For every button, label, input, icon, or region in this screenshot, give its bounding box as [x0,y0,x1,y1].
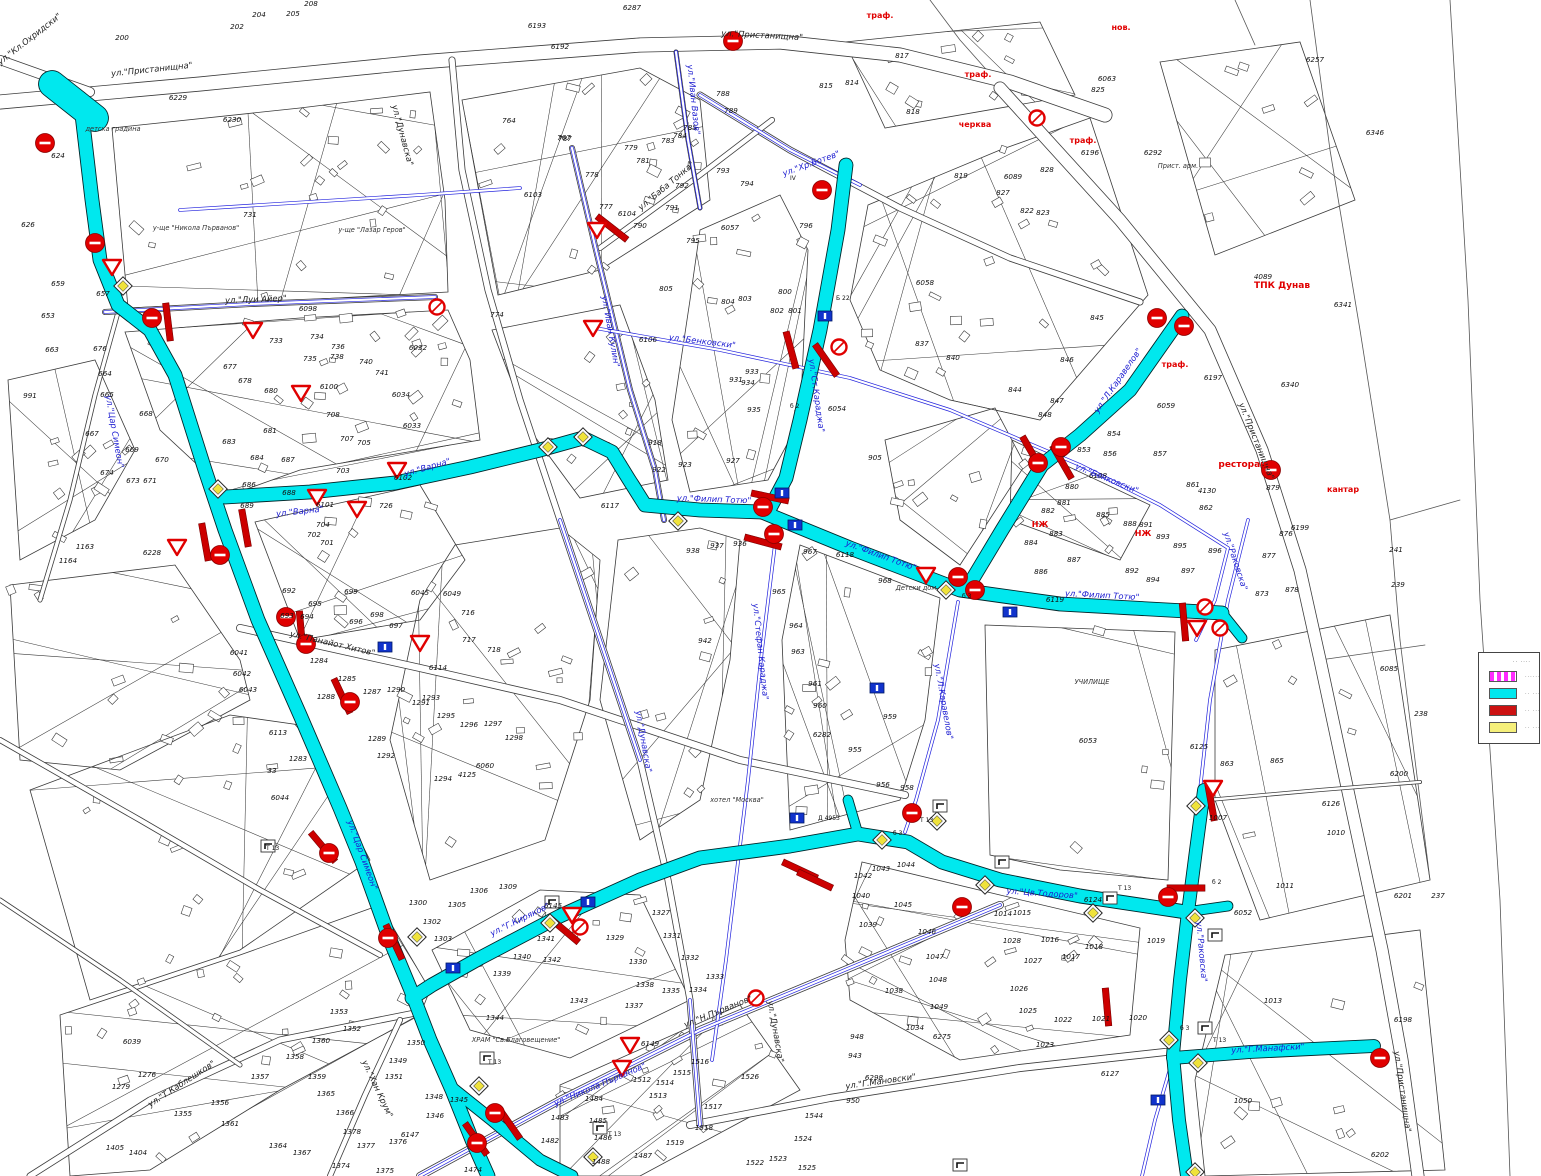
map-text: ул."Пристанищна" [110,60,194,79]
parcel-line [1177,121,1265,236]
map-text: 1343 [570,996,589,1005]
info-sign-glyph [1009,609,1011,615]
building-footprint [129,221,144,236]
road-casing [1000,88,1418,1176]
map-text: 6257 [1306,55,1325,64]
map-text: 958 [900,783,914,792]
map-text: 717 [462,635,476,644]
building-footprint [1331,999,1345,1010]
map-text: 6340 [1281,380,1300,389]
map-text: 1045 [894,900,913,909]
building-footprint [593,920,600,925]
map-text: Т 13 [265,845,279,852]
building-footprint [233,717,244,725]
building-footprint [930,199,940,209]
building-footprint [818,659,830,668]
map-text: 823 [1036,208,1050,217]
map-text: ул."Дунавска" [765,999,786,1063]
map-text: 1376 [389,1137,408,1146]
parcel-line [824,554,906,781]
map-text: 1526 [741,1072,760,1081]
cadastral-map-stage: 2002022042052086192619362296230624731626… [0,0,1541,1176]
map-text: 1404 [129,1148,148,1157]
map-text: 1022 [1054,1015,1073,1024]
map-text: 6104 [618,209,637,218]
map-text: 1377 [357,1141,376,1150]
map-text: 1050 [1234,1096,1253,1105]
map-text: IV [790,175,797,182]
map-text: 6063 [1098,74,1117,83]
building-footprint [566,83,580,92]
map-text: 1007 [1209,813,1228,822]
building-footprint [633,897,647,905]
map-text: 927 [726,456,740,465]
map-text: 1309 [499,882,518,891]
building-footprint [189,1132,200,1142]
building-footprint [171,616,179,623]
parcel-line [14,654,243,671]
map-text: 684 [250,453,264,462]
map-text: ул."Варна" [275,504,324,519]
map-text: 1298 [505,733,524,742]
no-entry-bar [728,40,739,43]
map-text: 1329 [606,933,625,942]
map-text: 784 [673,131,687,140]
road-fill [690,1052,1165,1125]
map-text: 1332 [681,953,700,962]
map-text: 6042 [233,669,252,678]
blue-road-inner [560,520,640,760]
parcel-block-outline [1160,42,1355,255]
building-footprint [909,302,922,312]
map-text: 1352 [343,1024,362,1033]
building-footprint [539,782,552,789]
building-footprint [328,136,339,144]
building-footprint [304,315,316,321]
map-text: 1350 [407,1038,426,1047]
map-text: 918 [648,438,662,447]
yield-sign-icon [348,502,366,517]
map-text: 6196 [1081,148,1100,157]
legend-item: ·· ···· · [1489,688,1531,699]
map-text: 671 [143,476,157,485]
field-boundary-line [1310,0,1400,640]
road-fill [0,42,1105,115]
parcel-line [1003,858,1156,879]
map-text: 1518 [695,1123,714,1132]
building-footprint [1243,832,1256,839]
building-footprint [640,73,652,85]
map-text: 238 [1414,709,1428,718]
map-text: 6089 [1004,172,1023,181]
map-text: 6054 [828,404,847,413]
map-text: 793 [716,166,730,175]
building-footprint [869,976,877,984]
parcel-block-outline [985,625,1175,880]
map-text: 854 [1107,429,1121,438]
building-footprint [108,694,118,704]
building-footprint [1221,1136,1235,1149]
legend-swatch [1489,688,1517,699]
building-footprint [52,733,67,747]
info-sign-glyph [796,815,798,821]
map-text: 938 [686,546,700,555]
no-entry-bar [1033,462,1044,465]
no-entry-bar [769,533,780,536]
map-text: 6098 [299,304,318,313]
building-footprint [844,588,851,598]
map-text: 844 [1008,385,1022,394]
building-footprint [250,175,264,187]
map-text: 892 [1125,566,1139,575]
no-entry-bar [490,1112,501,1115]
map-text: 796 [799,221,813,230]
map-text: 6202 [1371,1150,1390,1159]
map-text: ул."Кл.Охридски" [0,11,63,68]
map-text: Д 4953 [818,815,840,822]
map-text: 1019 [1147,936,1166,945]
map-text: 822 [1020,206,1034,215]
building-footprint [576,1024,589,1034]
building-footprint [1039,319,1048,328]
map-text: 1164 [59,556,78,565]
map-text: 674 [100,468,114,477]
map-text: 880 [1065,482,1079,491]
map-text: 1524 [794,1134,813,1143]
map-text: 1290 [387,685,406,694]
building-footprint [6,584,16,595]
building-footprint [602,1106,615,1114]
map-text: 950 [846,1096,860,1105]
map-text: 888 [1123,519,1137,528]
map-canvas[interactable]: 2002022042052086192619362296230624731626… [0,0,1541,1176]
map-text: 1287 [363,687,382,696]
parcel-line [220,762,319,957]
building-footprint [463,699,473,704]
map-text: 1514 [656,1078,675,1087]
map-text: 791 [665,203,679,212]
building-footprint [624,567,638,581]
map-text: 825 [1091,85,1105,94]
map-text: 204 [252,10,266,19]
no-entry-bar [758,506,769,509]
map-text: 931 [729,375,743,384]
building-footprint [616,383,625,391]
map-text: 848 [1038,410,1052,419]
building-footprint [449,619,459,630]
building-footprint [796,237,809,249]
building-footprint [784,730,794,740]
map-text: 1516 [691,1057,710,1066]
map-text: 6039 [123,1037,142,1046]
map-text: 664 [98,369,112,378]
map-labels-layer: 2002022042052086192619362296230624731626… [0,0,1445,1175]
map-text: 6058 [916,278,935,287]
map-text: 6193 [528,21,547,30]
parcel-line [731,469,774,486]
building-footprint [405,327,418,340]
map-text: 1038 [885,986,904,995]
map-text: 6103 [524,190,543,199]
map-text: ул."Стефан Караджа" [751,602,771,701]
map-text: ул."Т.Каблешков" [145,1058,217,1109]
building-footprint [985,957,996,967]
map-text: 6228 [143,548,162,557]
map-text: 6044 [271,793,290,802]
building-footprint [736,249,751,256]
building-footprint [1064,515,1076,522]
map-text: 800 [778,287,792,296]
building-footprint [329,168,338,177]
map-text: 774 [490,310,504,319]
no-entry-bar [383,937,394,940]
road-casing [30,1012,420,1176]
building-footprint [1019,459,1030,469]
building-footprint [48,460,58,467]
building-footprint [403,717,410,724]
parcel-line [67,1091,278,1128]
map-text: 205 [286,9,300,18]
no-entry-bar [324,852,335,855]
building-footprint [1299,168,1313,179]
map-text: 895 [1173,541,1187,550]
map-text: 885 [1096,510,1110,519]
building-footprint [1348,728,1357,735]
map-text: 733 [269,336,283,345]
map-text: 668 [139,409,153,418]
building-footprint [950,316,961,325]
map-text: 934 [741,378,755,387]
map-text: 663 [45,345,59,354]
building-footprint [396,309,406,318]
map-text: 698 [370,610,384,619]
map-text: хотел "Москва" [709,796,763,804]
map-text: 896 [1208,546,1222,555]
map-text: 657 [96,289,110,298]
map-text: 6059 [1157,401,1176,410]
road-closed-bar-icon [796,869,833,891]
building-footprint [315,176,325,185]
map-text: 853 [1077,445,1091,454]
map-text: 4125 [458,770,477,779]
map-text: 1292 [377,751,396,760]
building-footprint [1223,675,1237,687]
map-text: 1294 [434,774,453,783]
building-footprint [1200,158,1211,167]
building-footprint [582,83,594,95]
map-text: 965 [772,587,786,596]
map-text: 1303 [434,934,453,943]
map-text: 1011 [1276,881,1294,890]
map-text: 1338 [636,980,655,989]
building-footprint [1162,749,1168,755]
no-entry-bar [147,317,158,320]
building-footprint [912,492,927,507]
map-text: 827 [996,188,1010,197]
map-text: 1333 [706,972,725,981]
building-footprint [166,954,174,963]
map-text: Т 13 [607,1131,621,1138]
building-footprint [501,659,514,664]
map-text: 1356 [211,1098,230,1107]
map-text: 1283 [289,754,308,763]
map-text: Детски дом [895,584,937,592]
map-text: б 2 [790,403,800,410]
map-text: 689 [240,501,254,510]
poi-label-red: ресторант [1218,460,1272,470]
map-text: 1044 [897,860,916,869]
map-text: 837 [915,339,929,348]
direction-plate-icon [1198,1022,1212,1034]
map-text: 1042 [854,871,873,880]
map-text: 687 [281,455,295,464]
map-text: 624 [51,151,65,160]
map-text: 894 [1146,575,1160,584]
map-text: 863 [1220,759,1234,768]
building-footprint [452,399,462,407]
map-text: 1048 [929,975,948,984]
map-text: 1300 [409,898,428,907]
parcel-line [659,586,736,827]
no-entry-bar [1152,317,1163,320]
map-text: б 2 [1212,879,1222,886]
field-boundary-line [1450,0,1510,1176]
map-text: 237 [1431,891,1445,900]
map-text: 802 [770,306,784,315]
map-text: 683 [222,437,236,446]
map-text: 1302 [423,917,442,926]
map-text: 777 [599,202,613,211]
building-footprint [1093,626,1106,636]
building-footprint [1225,66,1239,76]
map-text: 897 [1181,566,1195,575]
building-footprint [174,775,183,785]
map-text: ул."Цар Симеон" [103,393,126,468]
building-footprint [841,709,853,720]
map-text: 681 [263,426,277,435]
info-sign-glyph [794,522,796,528]
building-footprint [330,948,343,958]
building-footprint [1109,508,1118,515]
parcel-line [1236,646,1289,913]
building-footprint [693,278,704,289]
no-entry-bar [40,142,51,145]
no-entry-bar [301,643,312,646]
map-text: 241 [1389,545,1403,554]
building-footprint [908,480,915,486]
map-text: ул."Раковска" [1194,920,1209,983]
building-footprint [929,292,941,301]
map-text: 6197 [1204,373,1223,382]
building-footprint [414,146,422,154]
map-text: 695 [308,599,322,608]
map-text: 814 [845,78,859,87]
building-footprint [197,969,205,978]
building-footprint [494,143,505,154]
map-text: 955 [848,745,862,754]
map-text: 923 [678,460,692,469]
map-text: 1047 [926,952,945,961]
map-text: 1345 [450,1095,469,1104]
map-text: 1297 [484,719,503,728]
map-text: 1028 [1003,936,1022,945]
legend-swatch [1489,671,1517,682]
building-footprint [127,1007,136,1016]
map-text: 6041 [230,648,248,657]
building-footprint [999,145,1007,153]
map-text: 1358 [286,1052,305,1061]
parcel-line [889,419,956,462]
map-text: 734 [310,332,324,341]
building-footprint [704,616,714,623]
building-footprint [337,160,347,169]
map-text: 697 [389,621,403,630]
building-footprint [1026,1025,1034,1031]
map-text: 948 [850,1032,864,1041]
map-text: 1334 [689,985,708,994]
building-footprint [941,45,956,54]
no-entry-bar [957,906,968,909]
building-footprint [1004,948,1016,955]
building-footprint [1339,689,1352,699]
parcel-line [1197,146,1337,190]
legend: ·· ···· ············ ···· ··· ···· ··· ·… [1478,652,1540,744]
map-text: 705 [357,438,371,447]
info-sign-glyph [781,490,783,496]
legend-item: ·· ···· · [1489,705,1531,716]
poi-label-red: траф. [867,11,894,20]
building-footprint [160,734,173,745]
map-text: детска градина [84,125,140,133]
map-text: 781 [636,156,650,165]
parcel-line [113,573,192,589]
map-text: 6125 [1190,742,1209,751]
map-text: 1025 [1019,1006,1038,1015]
map-text: 6117 [601,501,620,510]
parcel-line [435,127,447,268]
parcel-line [1216,991,1307,1174]
building-footprint [224,781,232,790]
map-text: 1040 [852,891,871,900]
map-text: 1353 [330,1007,349,1016]
map-text: 693 [280,611,294,620]
map-text: 6118 [836,550,855,559]
map-text: 818 [906,107,920,116]
poi-label-red: траф. [1162,360,1189,369]
building-footprint [339,313,353,323]
map-text: 1355 [174,1109,193,1118]
building-footprint [893,480,903,488]
road-casing [452,60,700,1125]
map-text: 4089 [1254,272,1273,281]
no-entry-bar [90,242,101,245]
building-footprint [1205,213,1215,222]
building-footprint [899,956,912,965]
building-footprint [282,1029,288,1035]
map-text: 1293 [422,693,441,702]
building-footprint [299,108,309,117]
map-text: 6033 [403,421,422,430]
poi-label-red: черква [959,120,992,129]
map-text: 6200 [1390,769,1409,778]
map-text: 1337 [625,1001,644,1010]
building-footprint [507,648,520,658]
map-text: 1279 [112,1082,131,1091]
building-footprint [240,183,248,189]
poi-label-red: ТПК Дунав [1254,281,1310,291]
building-footprint [111,675,125,686]
building-footprint [557,678,562,683]
